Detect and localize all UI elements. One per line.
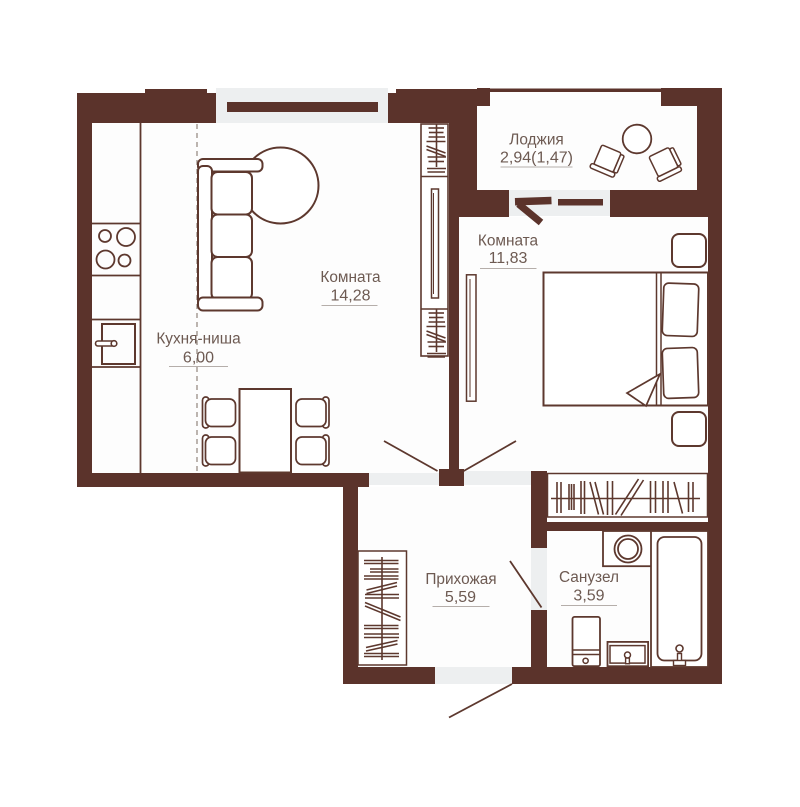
svg-text:11,83: 11,83 (489, 250, 528, 267)
svg-text:5,59: 5,59 (445, 589, 476, 606)
svg-text:Кухня-ниша: Кухня-ниша (156, 331, 241, 348)
svg-text:3,59: 3,59 (573, 588, 604, 605)
svg-text:Санузел: Санузел (559, 569, 619, 586)
svg-text:2,94(1,47): 2,94(1,47) (500, 150, 573, 167)
svg-text:Прихожая: Прихожая (425, 571, 496, 588)
svg-text:Лоджия: Лоджия (509, 132, 564, 149)
svg-text:Комната: Комната (478, 232, 539, 249)
svg-text:Комната: Комната (320, 269, 381, 286)
svg-text:6,00: 6,00 (183, 350, 214, 367)
svg-text:14,28: 14,28 (330, 288, 370, 305)
